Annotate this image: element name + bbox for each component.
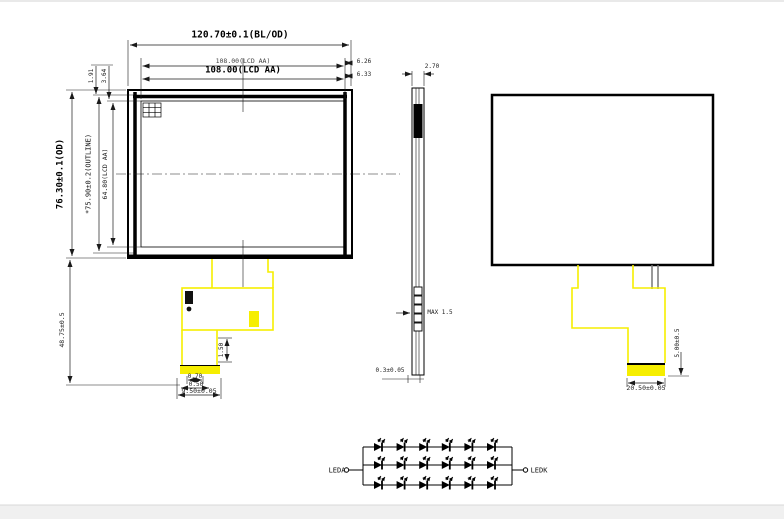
dim-top-gap-outer: 3.64 <box>102 69 108 83</box>
back-outline <box>492 95 713 265</box>
dim-bl-od-width: 120.70±0.1(BL/OD) <box>191 30 288 40</box>
dim-pad-width: 0.70 <box>188 374 202 380</box>
led-diode <box>397 456 408 470</box>
dim-back-connector-width: 20.50±0.05 <box>626 385 665 392</box>
led-diode <box>487 456 498 470</box>
fpc-component <box>185 291 193 304</box>
led-circuit <box>344 438 527 490</box>
led-cathode-label: LEDK <box>531 468 548 475</box>
glass-stack <box>414 104 423 138</box>
led-diode <box>487 476 498 490</box>
dim-fpc-length: 48.75±0.5 <box>59 312 66 347</box>
dim-top-gap-inner: 1.91 <box>89 69 95 83</box>
dim-od-height: 76.30±0.1(OD) <box>57 139 66 209</box>
fpc-front <box>180 259 273 374</box>
led-diode <box>397 438 408 452</box>
led-diode <box>397 476 408 490</box>
led-diode <box>487 438 498 452</box>
led-diode <box>442 456 453 470</box>
led-diode <box>419 456 430 470</box>
dim-right-offset-top: 6.26 <box>357 59 371 65</box>
lcd-module-outline-drawing: 120.70±0.1(BL/OD) 108.00(LCD AA) 108.00(… <box>0 0 784 519</box>
fpc-back-right-edge <box>633 265 665 363</box>
dim-thickness: 2.70 <box>425 64 439 70</box>
led-diode <box>464 456 475 470</box>
dim-connector-width: 9.50±0.05 <box>181 388 216 395</box>
fpc-back-left-edge <box>572 265 628 363</box>
led-diode <box>374 438 385 452</box>
led-diode <box>464 476 475 490</box>
dim-bottom-step: 0.3±0.05 <box>376 368 405 374</box>
led-diode <box>374 456 385 470</box>
dim-lcd-aa-height: 64.80(LCD AA) <box>102 149 109 200</box>
led-diode <box>419 476 430 490</box>
front-view <box>66 40 400 399</box>
side-dim-lines <box>382 71 434 383</box>
side-view <box>382 71 434 383</box>
page-bottom-edge <box>0 505 784 519</box>
led-diode <box>464 438 475 452</box>
fpc-shield-area <box>182 288 273 330</box>
fpc-neck <box>182 330 217 365</box>
fpc-component-pad <box>249 311 259 327</box>
led-diode <box>442 476 453 490</box>
led-anode-label: LEDA <box>329 468 346 475</box>
dim-lcd-aa-width: 108.00(LCD AA) <box>205 67 281 76</box>
cathode-terminal <box>523 468 527 472</box>
dim-lcd-aa-width-top: 108.00(LCD AA) <box>216 58 271 65</box>
fpc-fold-segments <box>414 287 422 331</box>
dim-fpc-neck: 1.50 <box>219 343 225 357</box>
dim-back-connector-height: 5.00±0.5 <box>675 329 681 358</box>
dim-right-offset-bottom: 6.33 <box>357 72 371 78</box>
page-top-edge <box>0 0 784 2</box>
led-diode <box>442 438 453 452</box>
led-diode <box>419 438 430 452</box>
dim-outline-height: *75.90±0.2(OUTLINE) <box>86 134 93 214</box>
led-array <box>374 438 498 490</box>
led-diode <box>374 476 385 490</box>
dim-fpc-max: MAX 1.5 <box>427 310 452 316</box>
drawing-canvas <box>0 0 784 519</box>
